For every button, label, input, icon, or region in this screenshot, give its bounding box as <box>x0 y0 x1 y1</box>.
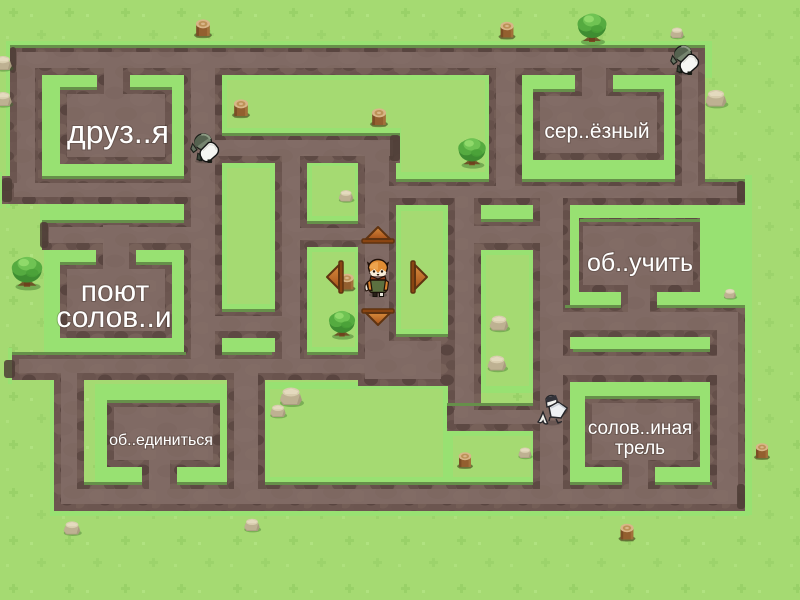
svg-text:об..единиться: об..единиться <box>109 432 213 449</box>
svg-text:солов..иная: солов..иная <box>588 418 692 439</box>
svg-text:солов..и: солов..и <box>56 301 171 334</box>
svg-text:сер..ёзный: сер..ёзный <box>544 120 649 143</box>
svg-text:трель: трель <box>615 438 665 459</box>
svg-text:друз..я: друз..я <box>67 114 169 150</box>
svg-text:об..учить: об..учить <box>587 249 693 277</box>
